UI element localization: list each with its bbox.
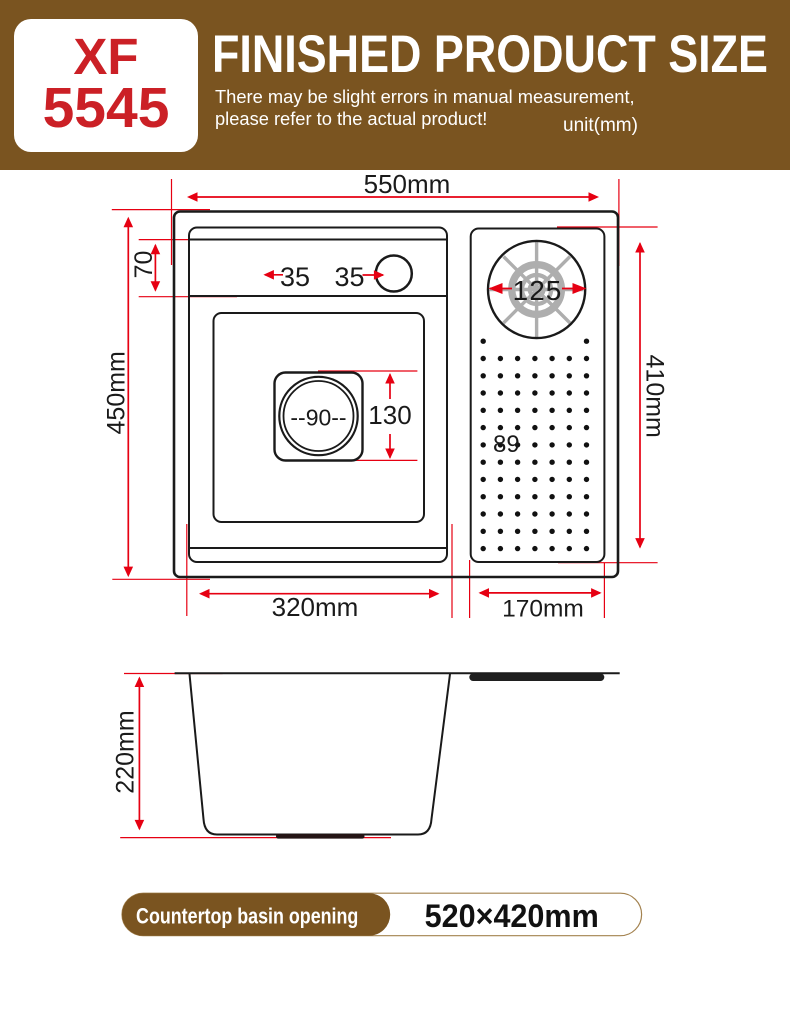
svg-text:130: 130: [368, 400, 411, 430]
svg-text:410mm: 410mm: [641, 355, 669, 438]
svg-text:89: 89: [493, 431, 520, 458]
svg-text:Countertop basin opening: Countertop basin opening: [136, 904, 358, 929]
svg-text:320mm: 320mm: [272, 592, 359, 622]
svg-text:35: 35: [334, 262, 364, 292]
svg-text:520×420mm: 520×420mm: [425, 898, 599, 934]
svg-text:70: 70: [130, 251, 158, 279]
svg-text:450mm: 450mm: [102, 351, 130, 434]
svg-text:125: 125: [513, 275, 563, 306]
svg-text:220mm: 220mm: [112, 710, 140, 793]
svg-text:170mm: 170mm: [502, 596, 584, 623]
svg-text:35: 35: [280, 262, 310, 292]
svg-text:--90--: --90--: [290, 405, 346, 431]
svg-text:550mm: 550mm: [364, 169, 451, 199]
